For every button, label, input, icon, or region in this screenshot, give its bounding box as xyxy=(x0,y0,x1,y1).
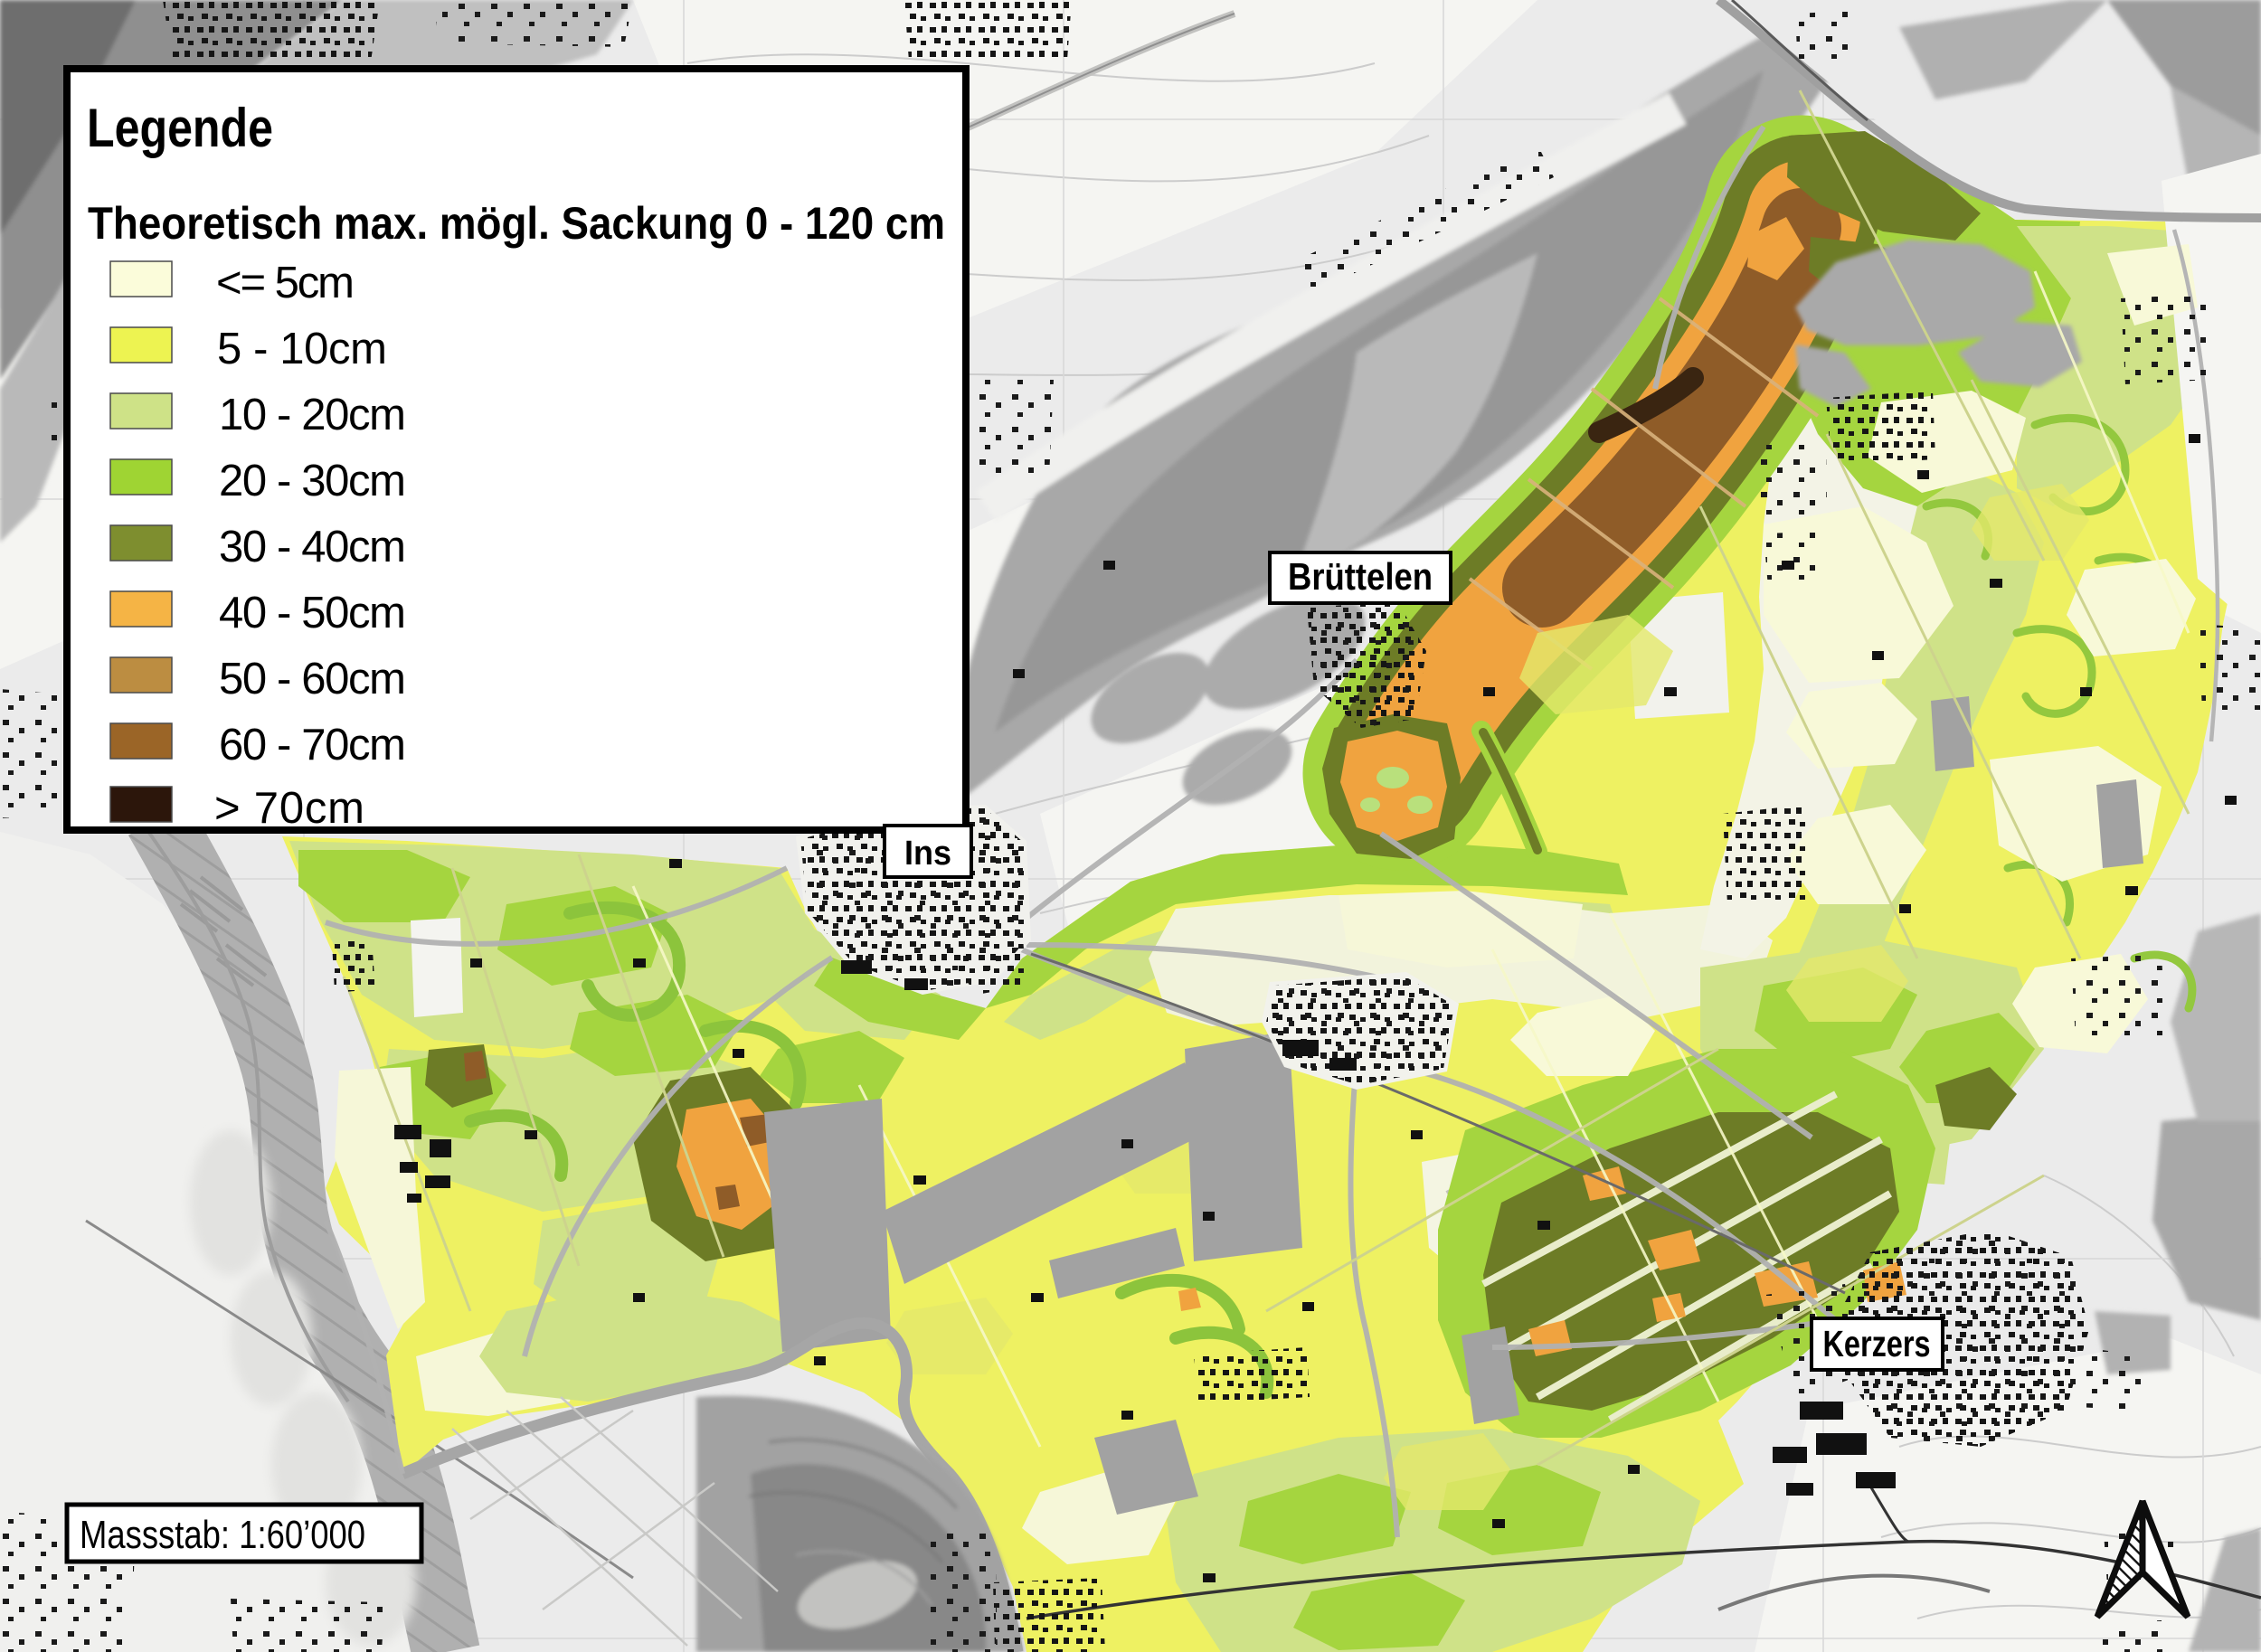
svg-text:Massstab: 1:60’000: Massstab: 1:60’000 xyxy=(80,1513,365,1557)
svg-text:20 - 30cm: 20 - 30cm xyxy=(219,457,406,505)
svg-text:40 - 50cm: 40 - 50cm xyxy=(219,589,406,637)
svg-text:60 - 70cm: 60 - 70cm xyxy=(219,721,406,769)
svg-text:Kerzers: Kerzers xyxy=(1823,1323,1931,1364)
svg-text:Legende: Legende xyxy=(87,98,273,158)
svg-text:<= 5cm: <= 5cm xyxy=(216,259,355,307)
svg-text:Ins: Ins xyxy=(904,835,951,873)
svg-text:50 - 60cm: 50 - 60cm xyxy=(219,655,406,703)
svg-text:10 - 20cm: 10 - 20cm xyxy=(219,391,406,439)
svg-text:> 70cm: > 70cm xyxy=(214,784,364,833)
svg-text:30 - 40cm: 30 - 40cm xyxy=(219,523,406,571)
svg-text:Brüttelen: Brüttelen xyxy=(1288,555,1433,598)
svg-text:5 - 10cm: 5 - 10cm xyxy=(217,325,387,373)
svg-text:Theoretisch max. mögl. Sackung: Theoretisch max. mögl. Sackung 0 - 120 c… xyxy=(88,198,945,249)
